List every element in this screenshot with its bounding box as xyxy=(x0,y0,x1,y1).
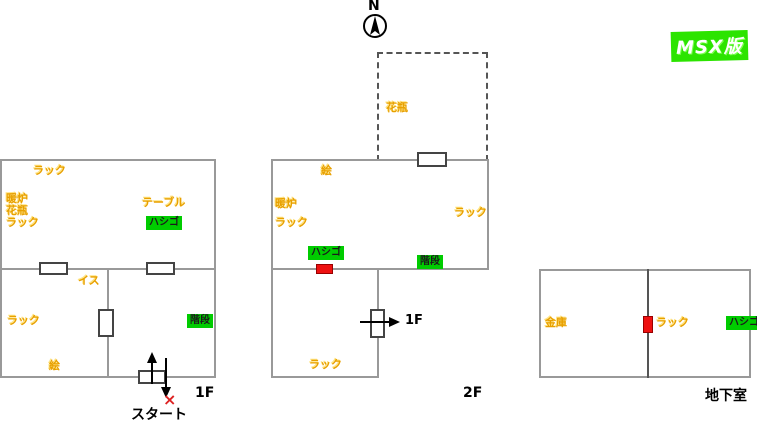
basement-title: 地下室 xyxy=(705,385,747,405)
basement-ladder-label: ハシゴ xyxy=(726,316,757,330)
floor1-door-inner xyxy=(98,309,114,337)
basement-safe-label: 金庫 xyxy=(545,317,567,329)
map-canvas: N MSX版 ラック 暖炉 花瓶 ラック テーブル ハシゴ イス ラック 絵 階… xyxy=(0,0,757,427)
floor2-title: 2F xyxy=(463,385,482,401)
floor1-rack-left-label: ラック xyxy=(6,217,39,229)
floor2-exit-label: 1F xyxy=(405,313,423,328)
floor1-door-right xyxy=(146,262,175,275)
floor1-door-left xyxy=(39,262,68,275)
compass-icon xyxy=(361,12,389,40)
floor2-fireplace-label: 暖炉 xyxy=(275,198,297,210)
floor1-stairs-label: 階段 xyxy=(187,314,213,328)
floor2-vase-label: 花瓶 xyxy=(386,102,408,114)
floor1-ladder-label: ハシゴ xyxy=(146,216,182,230)
basement-rack-label: ラック xyxy=(656,317,689,329)
floor2-ladder-label: ハシゴ xyxy=(308,246,344,260)
floor2-ladder-marker xyxy=(316,264,333,274)
floor2-rack-left-label: ラック xyxy=(275,217,308,229)
basement-ladder-marker xyxy=(643,316,653,333)
floor2-picture-label: 絵 xyxy=(321,165,332,177)
floor2-rack-lower-label: ラック xyxy=(309,359,342,371)
floor1-chair-label: イス xyxy=(78,275,100,287)
floor1-rack-top-label: ラック xyxy=(33,165,66,177)
floor1-picture-label: 絵 xyxy=(49,360,60,372)
floor2-door-top xyxy=(417,152,447,167)
start-label: スタート xyxy=(131,404,187,424)
floor2-stairs-label: 階段 xyxy=(417,255,443,269)
edition-badge: MSX版 xyxy=(671,30,749,62)
floor2-exit-arrow-icon xyxy=(358,312,403,332)
floor1-table-label: テーブル xyxy=(142,197,185,209)
floor2-rack-right-label: ラック xyxy=(454,207,487,219)
floor1-rack-lower-label: ラック xyxy=(7,315,40,327)
floor1-title: 1F xyxy=(195,385,214,401)
